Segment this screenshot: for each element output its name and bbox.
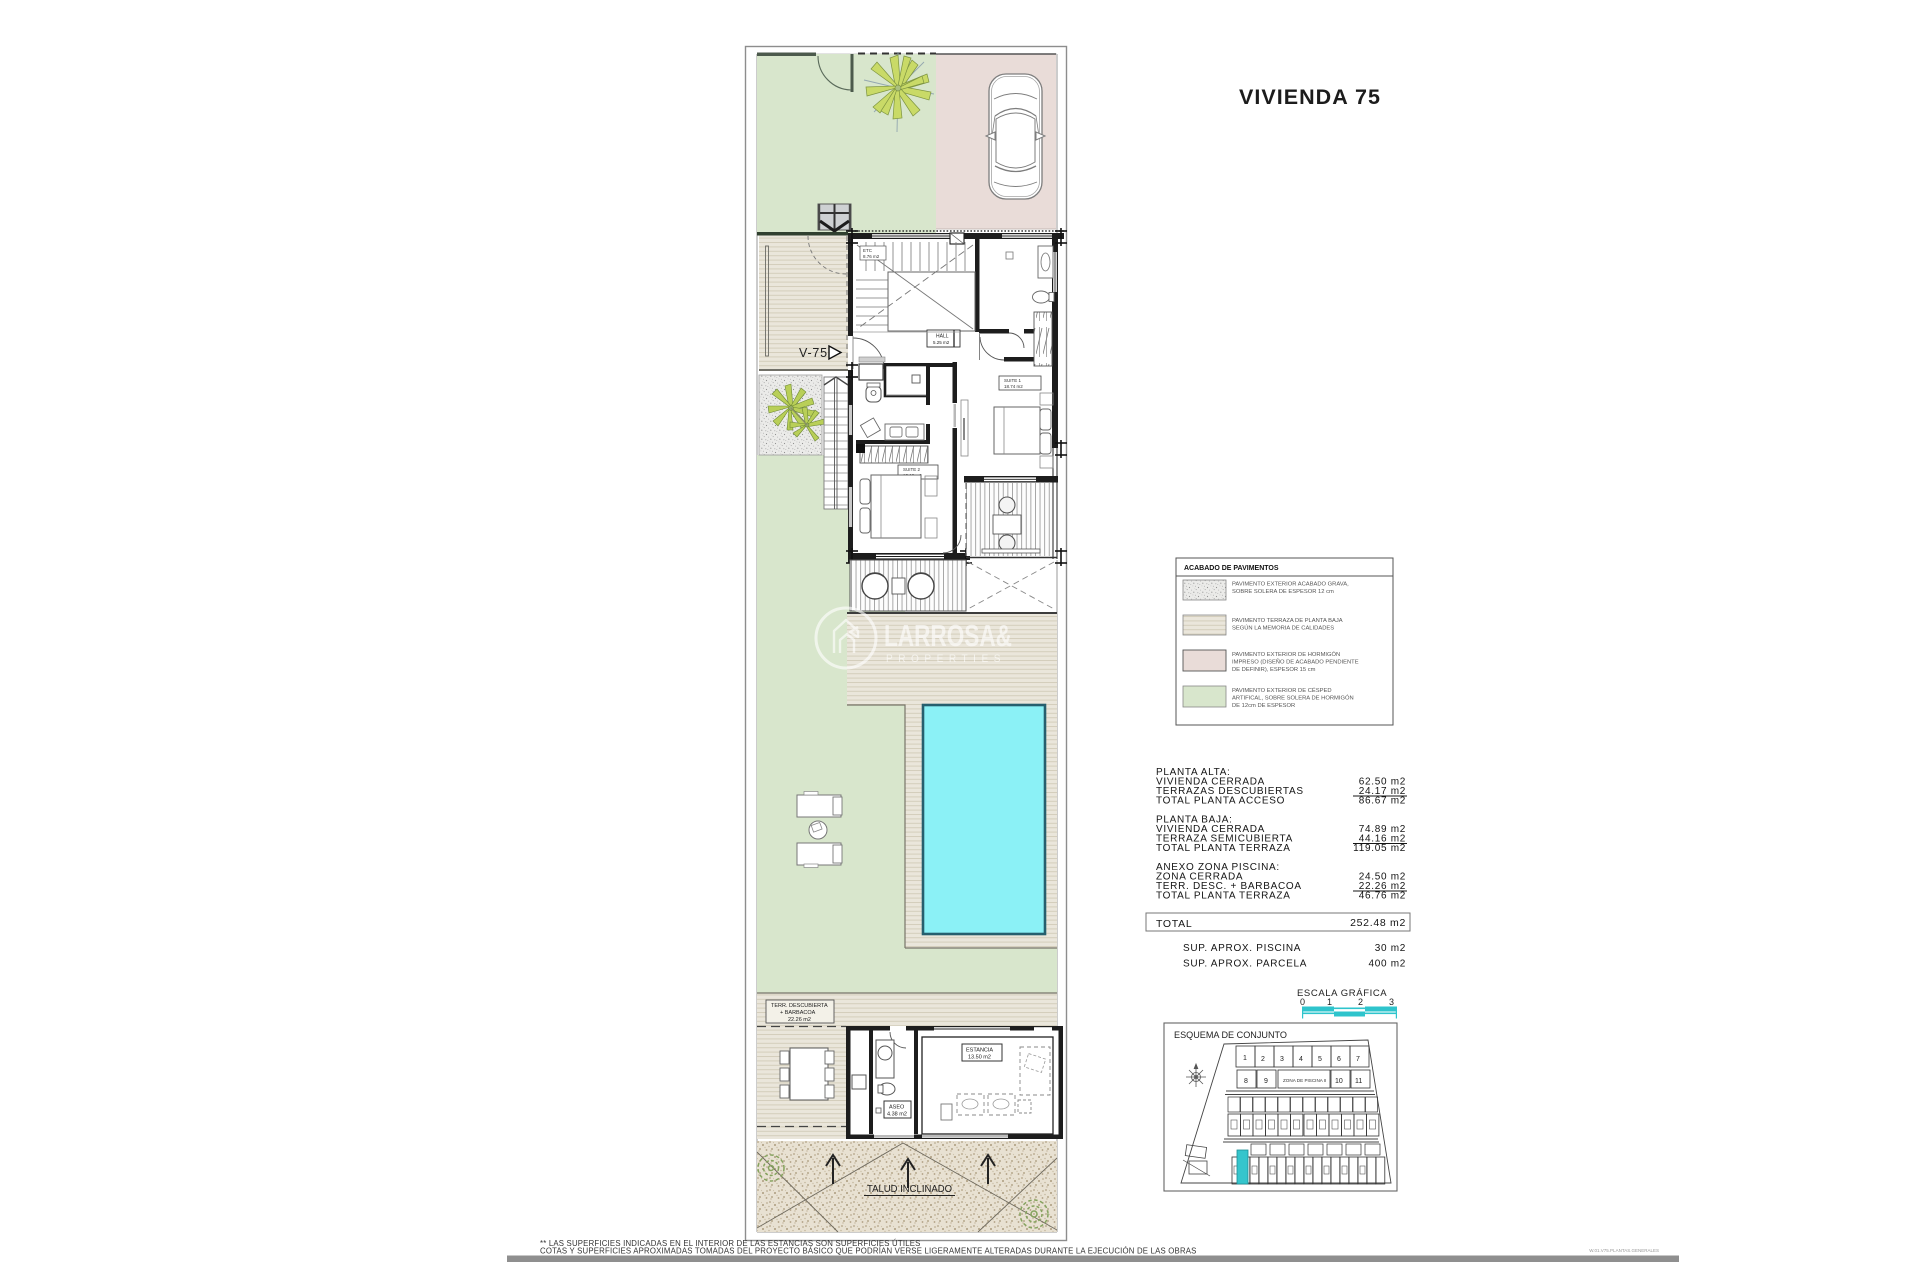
svg-text:6: 6: [1337, 1056, 1341, 1063]
svg-text:PAVIMENTO EXTERIOR DE CÉSPED: PAVIMENTO EXTERIOR DE CÉSPED: [1232, 687, 1332, 694]
svg-text:5: 5: [1318, 1056, 1322, 1063]
svg-text:TOTAL PLANTA TERRAZA: TOTAL PLANTA TERRAZA: [1156, 843, 1291, 854]
svg-text:PAVIMENTO TERRAZA DE PLANTA BA: PAVIMENTO TERRAZA DE PLANTA BAJA: [1232, 618, 1343, 624]
svg-text:VIVIENDA 75: VIVIENDA 75: [1239, 86, 1381, 109]
svg-text:13.50 m2: 13.50 m2: [968, 1055, 991, 1061]
svg-text:TALUD INCLINADO: TALUD INCLINADO: [867, 1184, 952, 1195]
svg-text:ACABADO DE PAVIMENTOS: ACABADO DE PAVIMENTOS: [1184, 565, 1279, 572]
svg-text:252.48 m2: 252.48 m2: [1350, 917, 1406, 929]
svg-text:V-75: V-75: [799, 346, 828, 360]
svg-text:TOTAL: TOTAL: [1156, 918, 1192, 930]
svg-text:86.67 m2: 86.67 m2: [1359, 796, 1406, 807]
svg-text:ESQUEMA DE CONJUNTO: ESQUEMA DE CONJUNTO: [1174, 1030, 1287, 1041]
svg-text:46.76 m2: 46.76 m2: [1359, 891, 1406, 902]
svg-text:11: 11: [1355, 1078, 1362, 1085]
svg-text:SEGÚN LA MEMORIA DE CALIDADES: SEGÚN LA MEMORIA DE CALIDADES: [1232, 625, 1334, 632]
svg-text:DE 12cm DE ESPESOR: DE 12cm DE ESPESOR: [1232, 703, 1295, 709]
svg-text:COTAS Y SUPERFICIES APROXIMADA: COTAS Y SUPERFICIES APROXIMADAS TOMADAS …: [540, 1247, 1197, 1256]
svg-text:5.25 m2: 5.25 m2: [933, 340, 950, 345]
svg-text:ESTANCIA: ESTANCIA: [966, 1048, 993, 1054]
svg-text:DE DEFINIR), ESPESOR 15 cm: DE DEFINIR), ESPESOR 15 cm: [1232, 667, 1316, 673]
svg-text:7: 7: [1356, 1056, 1360, 1063]
svg-text:4: 4: [1299, 1056, 1303, 1063]
svg-text:8.76 m2: 8.76 m2: [863, 254, 880, 259]
svg-text:W.01.V75.PLANTAS.GENERALES: W.01.V75.PLANTAS.GENERALES: [1589, 1248, 1659, 1253]
svg-text:PROPERTIES: PROPERTIES: [886, 653, 1006, 665]
svg-text:9: 9: [1264, 1078, 1268, 1085]
svg-text:LARROSA&: LARROSA&: [884, 618, 1012, 653]
svg-text:TOTAL PLANTA ACCESO: TOTAL PLANTA ACCESO: [1156, 796, 1285, 807]
svg-text:3: 3: [1389, 997, 1394, 1007]
svg-text:8: 8: [1244, 1078, 1248, 1085]
svg-text:4.38 m2: 4.38 m2: [887, 1112, 907, 1118]
svg-text:IMPRESO (DISEÑO DE ACABADO PEN: IMPRESO (DISEÑO DE ACABADO PENDIENTE: [1232, 659, 1359, 666]
svg-text:0: 0: [1300, 997, 1305, 1007]
svg-text:ETC: ETC: [863, 248, 873, 253]
svg-text:PAVIMENTO EXTERIOR DE HORMIGÓN: PAVIMENTO EXTERIOR DE HORMIGÓN: [1232, 651, 1340, 658]
svg-text:TOTAL PLANTA TERRAZA: TOTAL PLANTA TERRAZA: [1156, 891, 1291, 902]
svg-text:2: 2: [1358, 997, 1363, 1007]
svg-text:2: 2: [1261, 1056, 1265, 1063]
svg-text:ESCALA GRÁFICA: ESCALA GRÁFICA: [1297, 988, 1387, 999]
svg-text:+ BARBACOA: + BARBACOA: [780, 1010, 816, 1016]
svg-text:PAVIMENTO EXTERIOR ACABADO GRA: PAVIMENTO EXTERIOR ACABADO GRAVA,: [1232, 582, 1349, 588]
svg-text:30 m2: 30 m2: [1375, 943, 1406, 954]
svg-text:TERR. DESCUBIERTA: TERR. DESCUBIERTA: [771, 1003, 828, 1009]
svg-text:ASEO: ASEO: [889, 1105, 905, 1111]
svg-text:400 m2: 400 m2: [1368, 959, 1406, 970]
svg-text:ZONA DE PISCINA II: ZONA DE PISCINA II: [1283, 1078, 1326, 1083]
svg-text:SUP. APROX. PARCELA: SUP. APROX. PARCELA: [1183, 959, 1307, 970]
svg-text:3: 3: [1280, 1056, 1284, 1063]
svg-text:18.74 m2: 18.74 m2: [1004, 384, 1023, 389]
svg-text:119.05 m2: 119.05 m2: [1353, 843, 1406, 854]
svg-text:10: 10: [1335, 1078, 1343, 1085]
svg-text:1: 1: [1327, 997, 1332, 1007]
svg-text:HALL: HALL: [936, 334, 949, 340]
svg-text:SOBRE SOLERA DE ESPESOR 12 cm: SOBRE SOLERA DE ESPESOR 12 cm: [1232, 589, 1334, 595]
svg-text:SUP. APROX. PISCINA: SUP. APROX. PISCINA: [1183, 943, 1301, 954]
svg-text:SUITE 1: SUITE 1: [1004, 378, 1022, 383]
svg-text:ARTIFICAL, SOBRE SOLERA DE HOR: ARTIFICAL, SOBRE SOLERA DE HORMIGÓN: [1232, 695, 1354, 702]
svg-text:SUITE 2: SUITE 2: [903, 467, 921, 472]
svg-text:22.26 m2: 22.26 m2: [788, 1017, 811, 1023]
svg-text:1: 1: [1243, 1055, 1247, 1062]
